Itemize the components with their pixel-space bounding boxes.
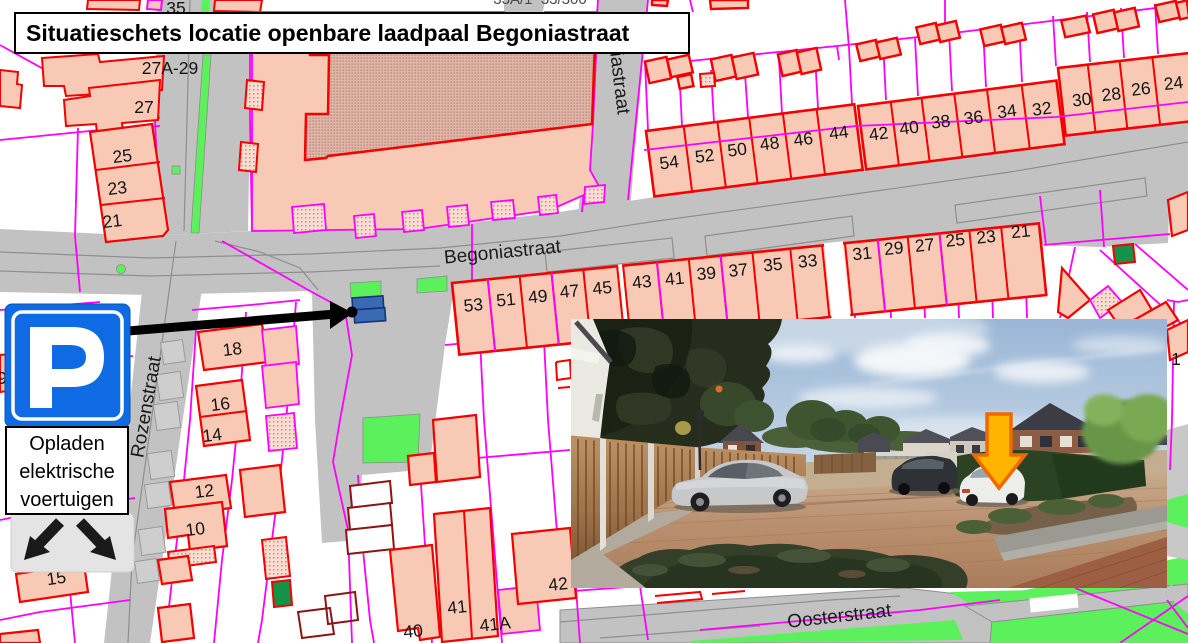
svg-text:40: 40 [402,620,424,642]
svg-text:53: 53 [463,294,484,316]
svg-text:40: 40 [898,116,920,138]
svg-text:41: 41 [446,596,467,618]
svg-text:36: 36 [962,106,984,128]
svg-text:24: 24 [1163,72,1185,94]
svg-text:33: 33 [797,250,818,272]
svg-text:27: 27 [914,234,935,256]
svg-text:21: 21 [1010,220,1031,242]
svg-text:23: 23 [975,226,996,248]
svg-text:33A/1 33/300: 33A/1 33/300 [493,0,586,8]
svg-text:18: 18 [221,338,243,360]
svg-text:12: 12 [193,480,215,502]
svg-text:25: 25 [111,145,133,167]
svg-text:50: 50 [726,138,748,160]
svg-text:26: 26 [1130,78,1152,100]
svg-text:42: 42 [868,122,890,144]
svg-text:42: 42 [547,573,568,595]
svg-text:39: 39 [696,262,717,284]
svg-text:31: 31 [851,242,872,264]
svg-text:37: 37 [727,259,748,281]
svg-text:48: 48 [759,132,781,154]
svg-text:28: 28 [1100,83,1122,105]
svg-text:34: 34 [996,100,1018,122]
svg-text:30: 30 [1071,88,1093,110]
svg-text:38: 38 [930,110,952,132]
svg-text:21: 21 [101,210,123,232]
svg-text:23: 23 [106,177,128,199]
svg-text:27A-29: 27A-29 [142,58,198,78]
svg-text:25: 25 [945,229,966,251]
svg-text:14: 14 [201,424,223,446]
svg-text:10: 10 [184,518,206,540]
svg-text:41: 41 [664,268,685,290]
svg-text:16: 16 [209,393,231,415]
svg-text:27: 27 [134,97,153,117]
svg-text:44: 44 [828,121,850,143]
svg-text:54: 54 [658,151,680,173]
svg-text:29: 29 [883,237,904,259]
svg-text:47: 47 [559,280,580,302]
svg-text:43: 43 [631,271,652,293]
svg-text:49: 49 [527,285,548,307]
svg-text:1: 1 [1171,349,1181,369]
svg-text:45: 45 [592,277,613,299]
svg-text:32: 32 [1031,98,1053,120]
svg-text:35: 35 [762,254,783,276]
svg-text:52: 52 [694,145,716,167]
svg-text:41A: 41A [479,612,512,635]
svg-text:51: 51 [495,289,516,311]
svg-text:46: 46 [792,128,814,150]
